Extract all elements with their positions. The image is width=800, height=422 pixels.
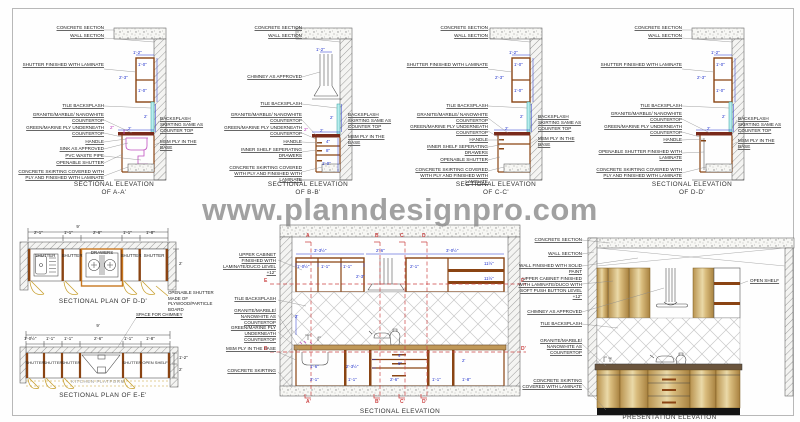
compartment-shutter-3: SHUTTER xyxy=(61,360,81,365)
dim-l3: 4" xyxy=(398,353,402,358)
panel-sectional-elevation: UPPER CABINET FINISHED WITH LAMINATE/DUC… xyxy=(222,220,528,420)
cut-c-bottom: C' xyxy=(400,399,405,405)
dim-total: 9' xyxy=(58,224,98,229)
dim-cabinet-height: 2'-3" xyxy=(495,75,504,80)
dim-cabinet-height: 2'-3" xyxy=(119,75,128,80)
label-wall-section: WALL SECTION xyxy=(518,251,582,257)
ceiling-section xyxy=(490,28,542,39)
cut-e-left: E xyxy=(264,278,267,284)
title-elevation-dd-1: SECTIONAL ELEVATION xyxy=(622,181,762,188)
ceiling-section xyxy=(692,28,744,39)
dim-seg-5: 1'-8" xyxy=(146,230,155,235)
dim-seg-1: 2'-1" xyxy=(34,230,43,235)
label-concrete-section: CONCRETE SECTION xyxy=(518,237,582,243)
label-ply-base: MSM PLY IN THE BASE xyxy=(538,136,582,148)
dim-l1: 1'-6" xyxy=(310,364,319,369)
dim-l0: 2' xyxy=(295,314,298,319)
label-concrete-section: CONCRETE SECTION xyxy=(596,25,682,31)
label-ply-base: MSM PLY IN THE BASE xyxy=(738,138,782,150)
label-tile-backsplash: TILE BACKSPLASH xyxy=(518,321,582,327)
label-inner-shelf: INNER SHELF SEPERATING DRAWERS xyxy=(406,144,488,156)
label-ply-base: MSM PLY IN THE BASE xyxy=(348,134,392,146)
dim-u8: 11½" xyxy=(484,276,494,281)
dim-u4: 1'-1" xyxy=(321,264,330,269)
right-wall xyxy=(785,248,793,396)
dim-seg-1: 1'-0½" xyxy=(24,336,36,341)
dim-drawer-1: 4" xyxy=(326,139,330,144)
countertop xyxy=(312,134,340,138)
compartment-drawers: DRAWERS xyxy=(86,250,118,255)
cad-sheet: CONCRETE SECTION WALL SECTION SHUTTER FI… xyxy=(0,0,800,422)
title-elevation-cc-1: SECTIONAL ELEVATION xyxy=(426,181,566,188)
dim-cabinet-width: 1'-2" xyxy=(711,50,720,55)
label-skirting: CONCRETE SKIRTING COVERED WITH PLY AND F… xyxy=(18,169,104,181)
dim-splash-height: 2' xyxy=(520,114,523,119)
cut-d-top: D xyxy=(422,233,426,239)
title-elevation-aa-1: SECTIONAL ELEVATION xyxy=(44,181,184,188)
dim-side-2: 2' xyxy=(179,367,182,372)
dim-door-lower: 1'-0" xyxy=(716,88,725,93)
dim-u0: 3'-3½" xyxy=(314,248,326,253)
dim-l7: 1'-1" xyxy=(348,377,357,382)
countertop xyxy=(294,345,506,350)
floor-skirting xyxy=(280,386,520,396)
tile-backsplash xyxy=(597,318,740,364)
dim-seg-5: 1'-1" xyxy=(124,336,133,341)
label-wall-section: WALL SECTION xyxy=(596,33,682,39)
dim-l8: 2'-6" xyxy=(390,377,399,382)
compartment-shutter-2: SHUTTER xyxy=(43,360,63,365)
panel-elevation-cc: CONCRETE SECTION WALL SECTION SHUTTER FI… xyxy=(404,12,590,204)
dim-seg-2: 1'-1" xyxy=(46,336,55,341)
label-chimney: CHIMNEY AS APPROVED xyxy=(218,74,302,80)
label-sink: SINK AS APPROVED xyxy=(18,146,104,152)
label-tile-backsplash: TILE BACKSPLASH xyxy=(18,103,104,109)
dim-splash-height: 2' xyxy=(144,114,147,119)
panel-elevation-bb: CONCRETE SECTION WALL SECTION CHIMNEY AS… xyxy=(216,12,402,204)
label-openable-shutter: OPENABLE SHUTTER FINISHED WITH LAMINATE xyxy=(596,149,682,161)
title-elevation-aa-2: OF A-A' xyxy=(44,189,184,196)
dim-splash-height: 2' xyxy=(722,114,725,119)
left-wall xyxy=(588,238,597,396)
label-skirting: CONCRETE SKIRTING COVERED WITH LAMINATE xyxy=(518,378,582,390)
label-countertop: GRANITE/MARBLE/ NANOWHITE AS COUNTERTOP xyxy=(222,308,276,326)
panel-presentation-elevation: CONCRETE SECTION WALL SECTION WALL FINIS… xyxy=(518,226,798,422)
cut-d-left: D xyxy=(264,346,268,352)
dim-seg-3: 2'-6" xyxy=(93,230,102,235)
compartment-open-shelf: OPEN SHELF xyxy=(141,360,169,365)
label-ply-base: MSM PLY IN THE BASE xyxy=(160,139,204,151)
compartment-shutter-4: SHUTTER xyxy=(122,360,142,365)
dim-drawer-3: 1'-0" xyxy=(322,161,331,166)
cut-b-top: B xyxy=(375,233,379,239)
tile-backsplash xyxy=(527,102,530,132)
title-sectional-elevation: SECTIONAL ELEVATION xyxy=(330,408,470,415)
label-tile-backsplash: TILE BACKSPLASH xyxy=(596,103,682,109)
cut-d-bottom: D' xyxy=(422,399,427,405)
label-shutter-laminate: SHUTTER FINISHED WITH LAMINATE xyxy=(406,62,488,68)
wall-section xyxy=(530,39,542,180)
concrete-skirting xyxy=(504,164,530,172)
dim-u7: 11½" xyxy=(484,261,494,266)
dim-l10: 1'-8" xyxy=(462,377,471,382)
dim-chimney-width: 1'-2" xyxy=(316,47,325,52)
dim-seg-4: 2'-6" xyxy=(94,336,103,341)
dim-l9: 1'-1" xyxy=(432,377,441,382)
dim-l5: 2' xyxy=(462,358,465,363)
label-marine-ply: GREEN/MARINE PLY UNDERNEATH COUNTERTOP xyxy=(406,124,488,136)
label-skirting: CONCRETE SKIRTING COVERED WITH PLY AND F… xyxy=(596,167,682,179)
tile-backsplash xyxy=(337,104,340,134)
wall-section xyxy=(154,39,166,180)
concrete-skirting xyxy=(706,164,732,172)
label-chimney: CHIMNEY AS APPROVED xyxy=(518,309,582,315)
watermark: www.planndesignpro.com xyxy=(165,192,635,228)
cut-a-top: A xyxy=(306,233,310,239)
title-plan-dd: SECTIONAL PLAN OF D-D' xyxy=(28,298,178,305)
dim-l6: 2'-1" xyxy=(310,377,319,382)
cut-a-bottom: A' xyxy=(306,399,311,405)
base-cabinets xyxy=(597,370,740,408)
label-shutter-laminate: SHUTTER FINISHED WITH LAMINATE xyxy=(18,62,104,68)
dim-side-1: 1'-2" xyxy=(179,355,188,360)
dim-l4: 8" xyxy=(398,361,402,366)
label-backsplash-skirting: BACKSPLASH SKIRTING SAME AS COUNTER TOP xyxy=(538,114,588,132)
cut-b-bottom: B' xyxy=(375,399,380,405)
dim-seg-2: 1'-1" xyxy=(64,230,73,235)
label-openable-shutter: OPENABLE SHUTTER xyxy=(18,160,104,166)
dim-u1: 2'-6" xyxy=(376,248,385,253)
label-openable-shutter: OPENABLE SHUTTER xyxy=(406,157,488,163)
label-countertop: GRANITE/MARBLE/ NANOWHITE COUNTERTOP xyxy=(406,112,488,124)
label-backsplash-skirting: BACKSPLASH SKIRTING SAME AS COUNTER TOP xyxy=(160,116,212,134)
label-open-shelf: OPEN SHELF xyxy=(750,278,794,284)
dim-counter-depth: 2' xyxy=(505,126,508,131)
label-tile-backsplash: TILE BACKSPLASH xyxy=(218,101,302,107)
dim-total: 9' xyxy=(73,323,123,328)
label-countertop: GRANITE/MARBLE/ NANOWHITE COUNTERTOP xyxy=(218,112,302,124)
label-wall-section: WALL SECTION xyxy=(218,33,302,39)
label-skirting: CONCRETE SKIRTING xyxy=(222,368,276,374)
label-kitchen-platform: KITCHEN PLATFORM xyxy=(66,379,130,384)
dim-u6: 2'-1" xyxy=(410,264,419,269)
label-marine-ply: GREEN/MARINE PLY UNDERNEATH COUNTERTOP xyxy=(218,125,302,137)
label-marine-ply: GREEN/MARINE PLY UNDERNEATH COUNTERTOP xyxy=(222,325,276,343)
dim-u5: 1'-1" xyxy=(343,264,352,269)
tile-backsplash xyxy=(729,102,732,132)
dim-drawer-2: 8" xyxy=(326,148,330,153)
label-backsplash-skirting: BACKSPLASH SKIRTING SAME AS COUNTER TOP xyxy=(738,116,790,134)
painted-wall-x xyxy=(597,248,785,266)
label-marine-ply: GREEN/MARINE PLY UNDERNEATH COUNTERTOP xyxy=(18,125,104,137)
dim-seg-6: 1'-8" xyxy=(146,336,155,341)
panel-elevation-dd: CONCRETE SECTION WALL SECTION SHUTTER FI… xyxy=(592,12,792,204)
label-countertop: GRANITE/MARBLE/ NANOWHITE AS COUNTERTOP xyxy=(518,338,582,356)
label-marine-ply: GREEN/MARINE PLY UNDERNEATH COUNTERTOP xyxy=(596,124,682,136)
dim-counter-depth: 2' xyxy=(320,128,323,133)
wall-section xyxy=(732,39,744,180)
dim-cabinet-width: 1'-2" xyxy=(133,50,142,55)
label-concrete-section: CONCRETE SECTION xyxy=(406,25,488,31)
wall-section xyxy=(340,39,352,180)
dim-counter-depth: 2' xyxy=(707,126,710,131)
dim-seg-3: 1'-1" xyxy=(64,336,73,341)
dim-door-upper: 1'-0" xyxy=(514,62,523,67)
door-swings xyxy=(30,281,168,296)
label-tile-backsplash: TILE BACKSPLASH xyxy=(222,296,276,302)
panel-elevation-aa: CONCRETE SECTION WALL SECTION SHUTTER FI… xyxy=(14,12,214,204)
countertop xyxy=(494,132,530,136)
dim-counter-thickness: 2" xyxy=(110,125,114,130)
dim-door-upper: 1'-0" xyxy=(138,62,147,67)
label-backsplash-skirting: BACKSPLASH SKIRTING SAME AS COUNTER TOP xyxy=(348,112,400,130)
dim-door-upper: 1'-0" xyxy=(716,62,725,67)
note-space-for-chimney: SPACE FOR CHIMNEY xyxy=(136,312,216,318)
label-concrete-section: CONCRETE SECTION xyxy=(18,25,104,31)
concrete-skirting xyxy=(128,164,154,172)
title-plan-ee: SECTIONAL PLAN OF E-E' xyxy=(38,392,168,399)
countertop xyxy=(595,364,742,370)
label-tile-backsplash: TILE BACKSPLASH xyxy=(406,103,488,109)
label-shutter-laminate: SHUTTER FINISHED WITH LAMINATE xyxy=(596,62,682,68)
dim-u3: 1'-0½" xyxy=(297,264,309,269)
dim-cabinet-height: 2'-3" xyxy=(697,75,706,80)
dim-door-lower: 1'-0" xyxy=(138,88,147,93)
label-solid-paint: WALL FINISHED WITH SOLID PAINT xyxy=(518,263,582,275)
label-upper-cabinet: UPPER CABINET FINISHED WITH LAMINATE/DUC… xyxy=(518,276,582,300)
dim-counter-depth: 2' xyxy=(128,126,131,131)
compartment-shutter-1: SHUTTER xyxy=(30,253,60,258)
title-elevation-bb-1: SECTIONAL ELEVATION xyxy=(238,181,378,188)
dim-depth: 2' xyxy=(179,261,182,266)
dim-door-lower: 1'-0" xyxy=(514,88,523,93)
label-handle: HANDLE xyxy=(406,137,488,143)
countertop xyxy=(696,132,732,136)
compartment-shutter-1: SHUTTER xyxy=(25,360,45,365)
label-countertop: GRANITE/MARBLE/ NANOWHITE COUNTERTOP xyxy=(18,112,104,124)
label-pvc-pipe: PVC WASTE PIPE xyxy=(18,153,104,159)
label-countertop: GRANITE/MARBLE/ NANOWHITE COUNTERTOP xyxy=(596,111,682,123)
dim-splash-height: 2' xyxy=(330,115,333,120)
countertop xyxy=(118,132,154,136)
upper-cabinets xyxy=(597,268,740,318)
ceiling-section xyxy=(114,28,166,39)
label-wall-section: WALL SECTION xyxy=(18,33,104,39)
label-handle: HANDLE xyxy=(218,139,302,145)
ceiling-section xyxy=(296,28,352,39)
dim-cabinet-width: 1'-2" xyxy=(509,50,518,55)
dim-u2: 3'-0½" xyxy=(446,248,458,253)
label-concrete-section: CONCRETE SECTION xyxy=(218,25,302,31)
ceiling-section xyxy=(588,238,794,248)
tile-backsplash xyxy=(151,102,154,132)
compartment-shutter-2: SHUTTER xyxy=(57,253,87,258)
dim-u9: 2'-3" xyxy=(356,274,365,279)
label-wall-section: WALL SECTION xyxy=(406,33,488,39)
dim-l2: 2'-3½" xyxy=(346,364,358,369)
label-upper-cabinet: UPPER CABINET FINISHED WITH LAMINATE/DUC… xyxy=(222,252,276,276)
dim-counter-thickness: 2" xyxy=(304,127,308,132)
label-inner-shelf: INNER SHELF SEPERATING DRAWERS xyxy=(218,147,302,159)
label-handle: HANDLE xyxy=(18,139,104,145)
chimney xyxy=(312,54,342,99)
left-wall xyxy=(280,237,292,390)
title-elevation-dd-2: OF D-D' xyxy=(622,189,762,196)
title-presentation-elevation: PRESENTATION ELEVATION xyxy=(597,414,742,421)
note-openable-shutter: OPENABLE SHUTTER MADE OF PLYWOOD/PARTICL… xyxy=(168,290,226,313)
label-handle: HANDLE xyxy=(596,137,682,143)
compartment-shutter-4: SHUTTER xyxy=(139,253,169,258)
cut-c-top: C xyxy=(400,233,404,239)
dim-seg-4: 1'-1" xyxy=(123,230,132,235)
